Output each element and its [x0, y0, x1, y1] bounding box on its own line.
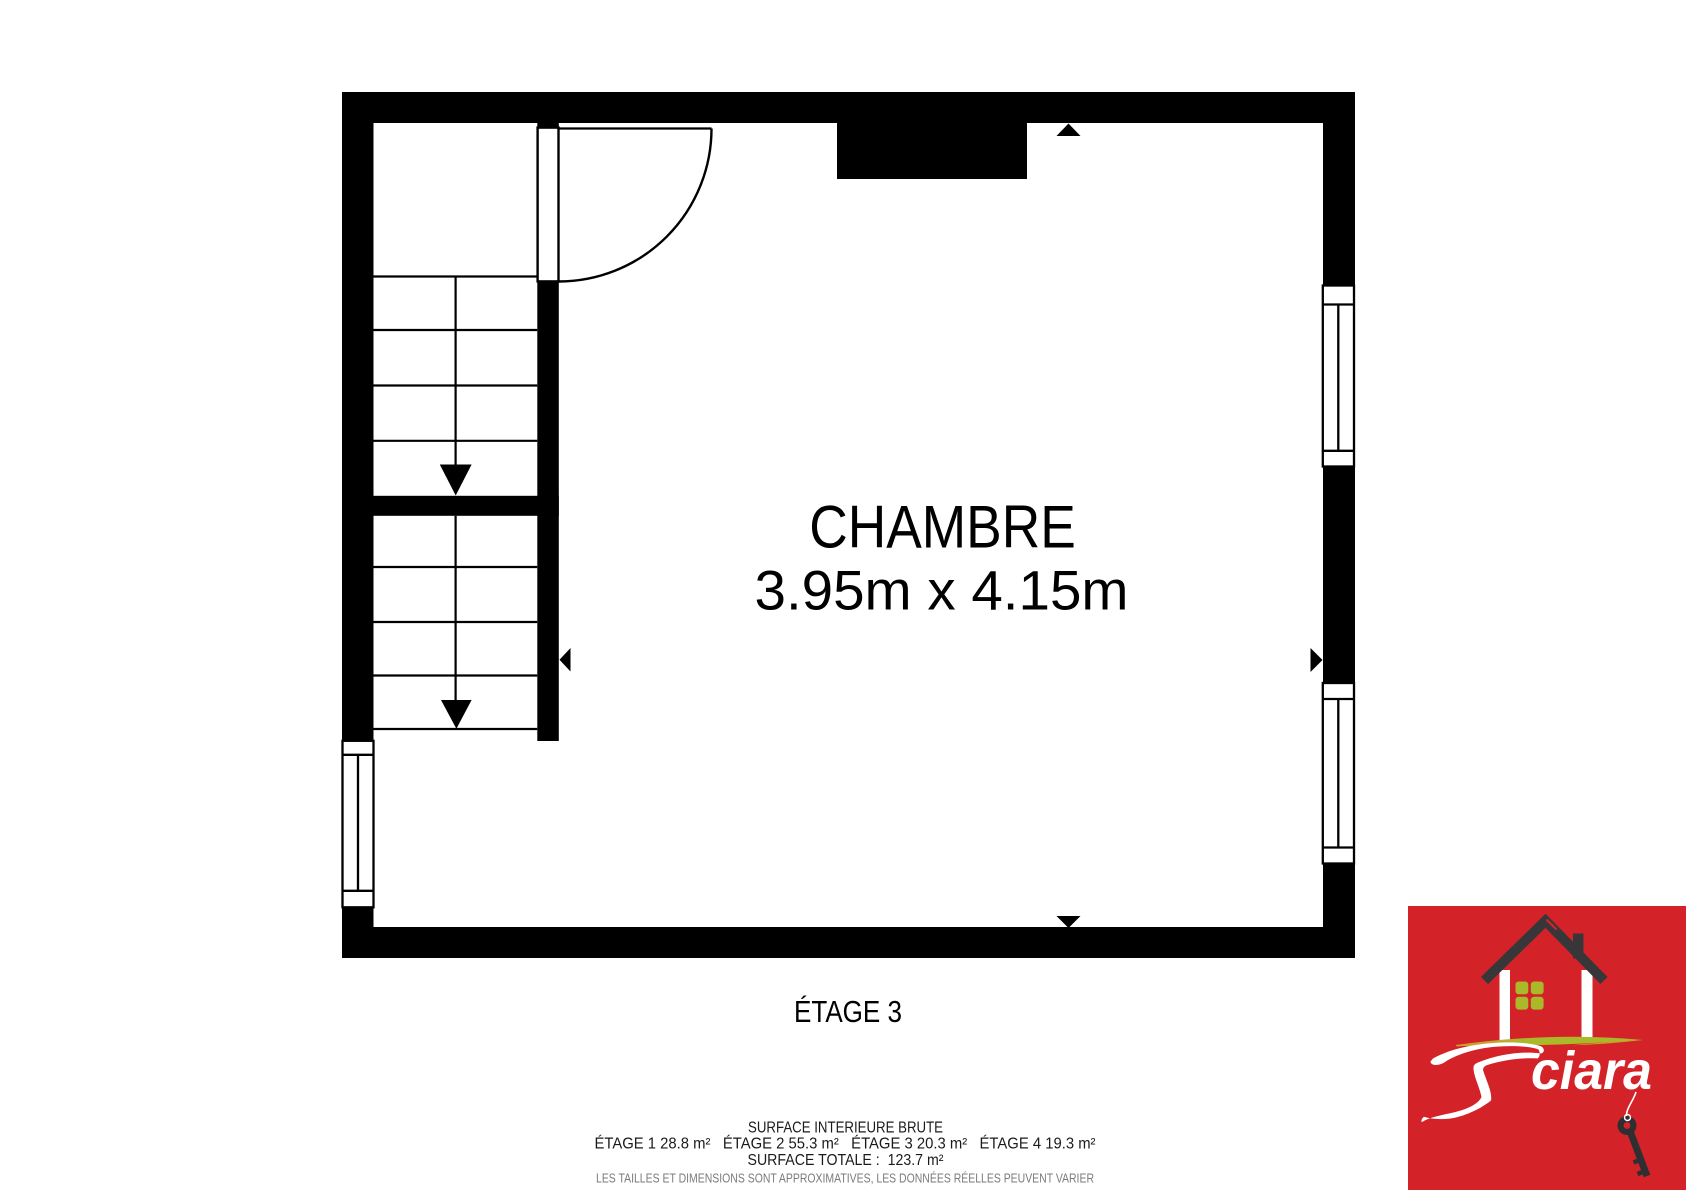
svg-text:SURFACE INTERIEURE BRUTE: SURFACE INTERIEURE BRUTE — [748, 1120, 943, 1137]
svg-text:ÉTAGE 3: ÉTAGE 3 — [794, 994, 902, 1029]
svg-text:CHAMBRE: CHAMBRE — [809, 494, 1076, 561]
svg-text:SURFACE TOTALE : 123.7 m²: SURFACE TOTALE : 123.7 m² — [748, 1152, 944, 1169]
svg-text:LES TAILLES ET DIMENSIONS SONT: LES TAILLES ET DIMENSIONS SONT APPROXIMA… — [596, 1171, 1094, 1186]
svg-text:ÉTAGE 1 28.8 m² ÉTAGE 2 55.3: ÉTAGE 1 28.8 m² ÉTAGE 2 55.3 m² ÉTAGE 3 … — [595, 1136, 1096, 1153]
svg-text:3.95m x 4.15m: 3.95m x 4.15m — [755, 559, 1129, 622]
svg-text:ciara: ciara — [1531, 1041, 1652, 1101]
